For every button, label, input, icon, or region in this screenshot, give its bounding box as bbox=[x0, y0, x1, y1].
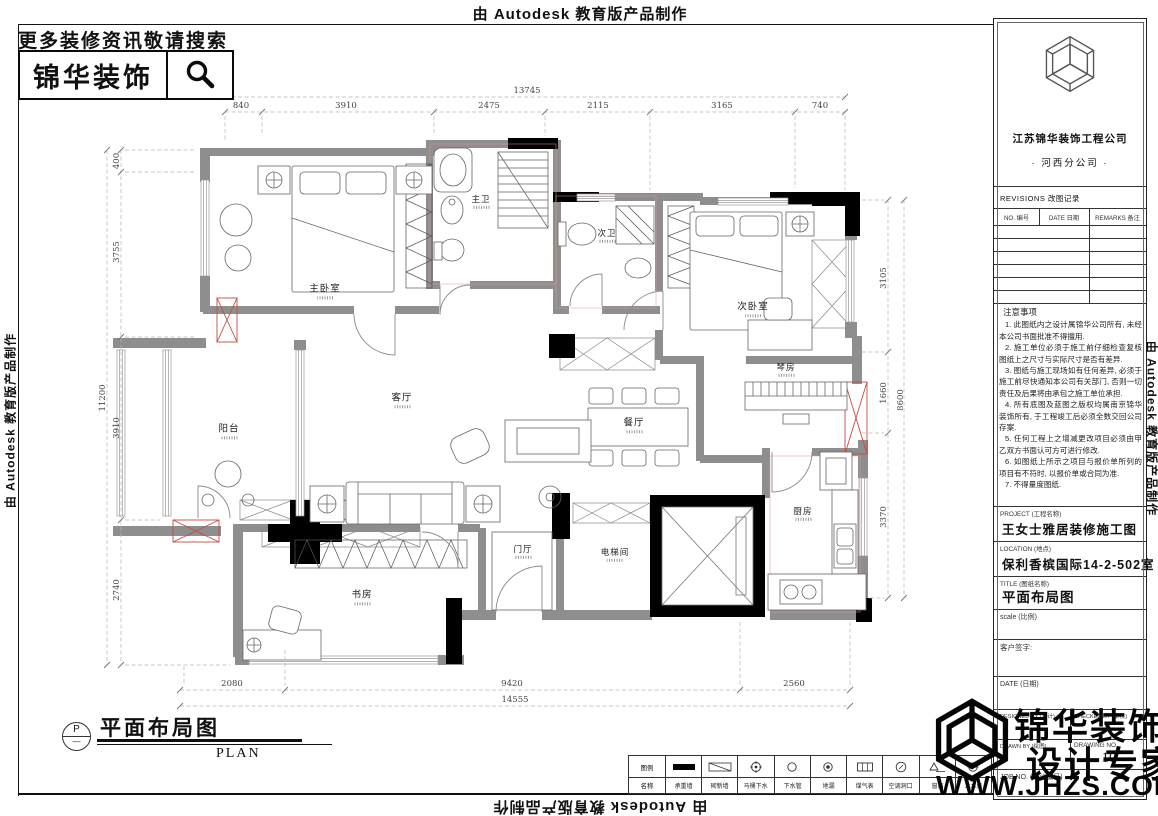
dim-top-seg: 3165 bbox=[710, 101, 734, 111]
legend-item: 煤气表 bbox=[846, 756, 882, 793]
plan-title-en: PLAN bbox=[216, 746, 261, 762]
dim-top-seg: 740 bbox=[811, 101, 829, 111]
room-label-balcony: 阳台 bbox=[218, 424, 239, 439]
room-label-study: 书房 bbox=[351, 590, 372, 605]
location-row: LOCATION (地点) 保利香槟国际14-2-502室 bbox=[994, 541, 1146, 577]
dim-bottom-seg: 2080 bbox=[220, 679, 244, 689]
dim-left-seg: 3755 bbox=[112, 241, 122, 263]
room-label-foyer: 门厅 bbox=[513, 545, 532, 559]
room-label-piano-room: 琴房 bbox=[776, 363, 795, 377]
room-label-second-bath: 次卫 bbox=[597, 229, 616, 243]
dim-right-seg: 1660 bbox=[879, 382, 889, 404]
dim-right-total: 8600 bbox=[896, 389, 906, 411]
legend-item: 下水管 bbox=[774, 756, 810, 793]
dim-top-seg: 2475 bbox=[477, 101, 501, 111]
title-block: 江苏锦华装饰工程公司 · 河西分公司 · REVISIONS 改图记录 NO. … bbox=[993, 18, 1147, 800]
room-label-second-bedroom: 次卧室 bbox=[737, 302, 769, 317]
room-label-master-bedroom: 主卧室 bbox=[309, 284, 341, 299]
dim-right-seg: 3105 bbox=[879, 267, 889, 289]
watermark-url: WWW.JHZS.COM bbox=[936, 770, 1158, 802]
project-name: 王女士雅居装修施工图 bbox=[1002, 519, 1137, 538]
location-name: 保利香槟国际14-2-502室 bbox=[1002, 554, 1155, 573]
drain-pipe-icon bbox=[775, 756, 810, 778]
search-icon bbox=[166, 52, 232, 98]
company-name: 江苏锦华装饰工程公司 bbox=[994, 131, 1146, 146]
revisions-title: REVISIONS 改图记录 bbox=[1000, 193, 1080, 204]
notes-section: 注意事项 1. 此图纸内之设计属锦华公司所有, 未经本公司书面批准不得擅用. 2… bbox=[999, 307, 1142, 491]
room-label-elevator-hall: 电梯间 bbox=[601, 548, 630, 562]
dim-left-seg: 2740 bbox=[112, 579, 122, 601]
legend-item: 空调洞口 bbox=[882, 756, 918, 793]
client-sign-row: 客户签字: bbox=[994, 639, 1146, 677]
room-label-master-bath: 主卫 bbox=[471, 195, 490, 209]
dim-left-total: 11200 bbox=[98, 384, 108, 411]
gas-meter-icon bbox=[847, 756, 882, 778]
dim-top-total: 13745 bbox=[512, 86, 541, 96]
dim-bottom-seg: 9420 bbox=[500, 679, 524, 689]
bearing-wall-icon bbox=[666, 756, 701, 778]
room-label-dining-room: 餐厅 bbox=[623, 418, 644, 433]
drawing-sheet: 由 Autodesk 教育版产品制作 由 Autodesk 教育版产品制作 由 … bbox=[0, 0, 1158, 816]
dim-top-seg: 840 bbox=[232, 101, 250, 111]
notes-title: 注意事项 bbox=[999, 307, 1142, 318]
room-label-living-room: 客厅 bbox=[391, 393, 412, 408]
company-cube-logo bbox=[1039, 33, 1101, 95]
dim-left-seg: 3910 bbox=[112, 417, 122, 439]
dim-left-seg: 400 bbox=[112, 153, 122, 169]
elevator-shaft bbox=[662, 507, 753, 605]
new-wall-icon bbox=[702, 756, 737, 778]
ac-opening-icon bbox=[883, 756, 918, 778]
legend-item: 马桶下水 bbox=[737, 756, 773, 793]
toilet-drain-icon bbox=[738, 756, 773, 778]
brand-box: 锦华装饰 bbox=[18, 50, 234, 100]
autodesk-banner-top: 由 Autodesk 教育版产品制作 bbox=[420, 3, 740, 24]
brand-name: 锦华装饰 bbox=[20, 52, 166, 98]
dim-right-seg: 3370 bbox=[879, 506, 889, 528]
autodesk-banner-bottom: 由 Autodesk 教育版产品制作 bbox=[440, 797, 760, 816]
dim-bottom-total: 14555 bbox=[500, 695, 529, 705]
plan-ref-bubble: P— bbox=[62, 722, 91, 751]
dim-top-seg: 3910 bbox=[334, 101, 358, 111]
autodesk-banner-left: 由 Autodesk 教育版产品制作 bbox=[2, 333, 19, 509]
drawing-title: 平面布局图 bbox=[1002, 586, 1075, 606]
scale-row: scale (比例) bbox=[994, 609, 1146, 640]
company-branch: · 河西分公司 · bbox=[994, 155, 1146, 169]
drawing-title-row: TITLE (图纸名称) 平面布局图 bbox=[994, 576, 1146, 610]
revisions-table: NO. 编号 DATE 日期 REMARKS 备注 bbox=[994, 208, 1146, 304]
floor-plan-canvas bbox=[0, 0, 1158, 816]
plan-title-underline bbox=[97, 739, 302, 742]
room-label-kitchen: 厨房 bbox=[793, 507, 812, 521]
plan-title-underline-thin bbox=[97, 744, 332, 745]
dim-bottom-seg: 2560 bbox=[782, 679, 806, 689]
autodesk-banner-right: 由 Autodesk 教育版产品制作 bbox=[1144, 341, 1158, 517]
legend-item: 地漏 bbox=[810, 756, 846, 793]
floor-drain-icon bbox=[811, 756, 846, 778]
plan-title: 平面布局图 bbox=[100, 712, 220, 742]
legend-header: 图例 名称 bbox=[629, 756, 665, 793]
legend-item: 承重墙 bbox=[665, 756, 701, 793]
project-row: PROJECT (工程名称) 王女士雅居装修施工图 bbox=[994, 506, 1146, 542]
dim-top-seg: 2115 bbox=[586, 101, 610, 111]
search-tagline: 更多装修资讯敬请搜索 bbox=[18, 26, 228, 53]
legend-item: 砌新墙 bbox=[701, 756, 737, 793]
